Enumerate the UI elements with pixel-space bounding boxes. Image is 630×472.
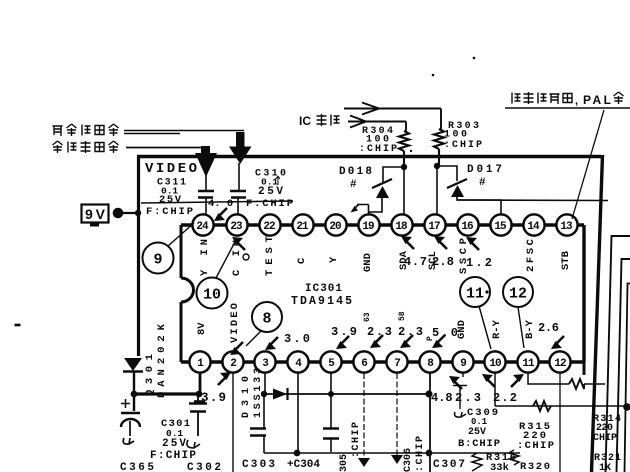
svg-text:Y: Y	[328, 256, 340, 263]
svg-text:C306: C306	[403, 448, 414, 472]
svg-text:TDA9145: TDA9145	[291, 295, 352, 308]
svg-text:2.2: 2.2	[493, 391, 517, 405]
svg-text:11: 11	[522, 358, 535, 370]
svg-text:4. 0: 4. 0	[208, 198, 233, 210]
svg-text:21: 21	[296, 221, 309, 233]
svg-text:3.9: 3.9	[331, 325, 357, 339]
svg-text:2.3: 2.3	[455, 391, 481, 405]
svg-text:1K: 1K	[599, 463, 611, 472]
svg-text:16: 16	[461, 221, 473, 233]
svg-text:305: 305	[339, 454, 350, 472]
svg-text:VIDEO: VIDEO	[229, 303, 241, 343]
svg-text:CHIP: CHIP	[593, 433, 617, 444]
svg-text:14: 14	[527, 221, 540, 233]
svg-text:20: 20	[329, 221, 341, 233]
svg-text:8: 8	[262, 311, 271, 328]
svg-text:9V: 9V	[85, 206, 106, 222]
svg-text::CHIP: :CHIP	[517, 440, 554, 452]
svg-text:2FSC: 2FSC	[525, 238, 537, 272]
svg-text:7: 7	[394, 358, 400, 370]
svg-text:4.7: 4.7	[404, 255, 427, 269]
svg-text:12: 12	[509, 286, 527, 303]
svg-text:6: 6	[361, 358, 367, 370]
svg-text:0.1: 0.1	[471, 417, 488, 427]
svg-text:9: 9	[153, 252, 162, 269]
svg-text:4.8: 4.8	[431, 391, 453, 405]
svg-text:2.8: 2.8	[432, 255, 454, 269]
svg-text:R320: R320	[520, 461, 550, 472]
svg-text:5.0: 5.0	[432, 326, 458, 340]
svg-text:P: P	[426, 336, 435, 341]
svg-text:C: C	[296, 257, 308, 264]
svg-text:VIDEO: VIDEO	[145, 161, 197, 177]
svg-text:10: 10	[203, 287, 221, 304]
svg-text:#: #	[350, 179, 357, 191]
svg-text::CHIP: :CHIP	[444, 140, 482, 151]
svg-text:25V: 25V	[162, 438, 186, 450]
svg-text:15: 15	[494, 221, 507, 233]
svg-text:19: 19	[362, 221, 374, 233]
svg-text:8V: 8V	[196, 322, 208, 335]
svg-text:58: 58	[398, 311, 407, 321]
svg-text:22: 22	[263, 221, 275, 233]
svg-text:3.0: 3.0	[284, 332, 310, 346]
svg-text:17: 17	[428, 221, 440, 233]
svg-text:25V: 25V	[258, 186, 283, 198]
svg-text:D018: D018	[339, 166, 372, 178]
svg-text:13: 13	[560, 221, 573, 233]
svg-text:+C304: +C304	[287, 459, 320, 471]
svg-text:18: 18	[395, 221, 408, 233]
svg-text:11: 11	[466, 286, 484, 303]
svg-text:100: 100	[444, 130, 467, 141]
svg-text:1.2: 1.2	[466, 256, 492, 270]
svg-text:B-Y: B-Y	[524, 319, 536, 339]
svg-text:24: 24	[196, 221, 209, 233]
svg-text:#: #	[479, 177, 486, 189]
svg-text:B:CHIP: B:CHIP	[458, 438, 500, 450]
svg-text:C307: C307	[433, 459, 465, 471]
svg-text:R-Y: R-Y	[491, 319, 503, 339]
svg-text::CHIP: :CHIP	[415, 436, 426, 472]
svg-text:10: 10	[489, 358, 501, 370]
svg-text:IC: IC	[299, 114, 311, 128]
svg-text:2.6: 2.6	[538, 321, 559, 335]
svg-text:33k: 33k	[490, 462, 509, 472]
svg-text:GND: GND	[362, 253, 374, 272]
svg-text::CHIP: :CHIP	[359, 144, 397, 155]
svg-text:12: 12	[554, 358, 566, 370]
svg-text:PAL: PAL	[583, 93, 611, 107]
svg-text:25V: 25V	[468, 427, 486, 438]
svg-text:63: 63	[363, 312, 372, 322]
svg-text:C303: C303	[242, 459, 275, 471]
svg-text:STB: STB	[560, 250, 572, 270]
svg-text:9: 9	[460, 358, 466, 370]
svg-text:2: 2	[230, 358, 236, 370]
svg-text:,: ,	[575, 95, 578, 107]
svg-text:25V: 25V	[159, 194, 182, 206]
svg-text:IC301: IC301	[305, 283, 342, 295]
svg-text:23: 23	[230, 221, 243, 233]
svg-text:F:CHIP: F:CHIP	[150, 450, 196, 462]
